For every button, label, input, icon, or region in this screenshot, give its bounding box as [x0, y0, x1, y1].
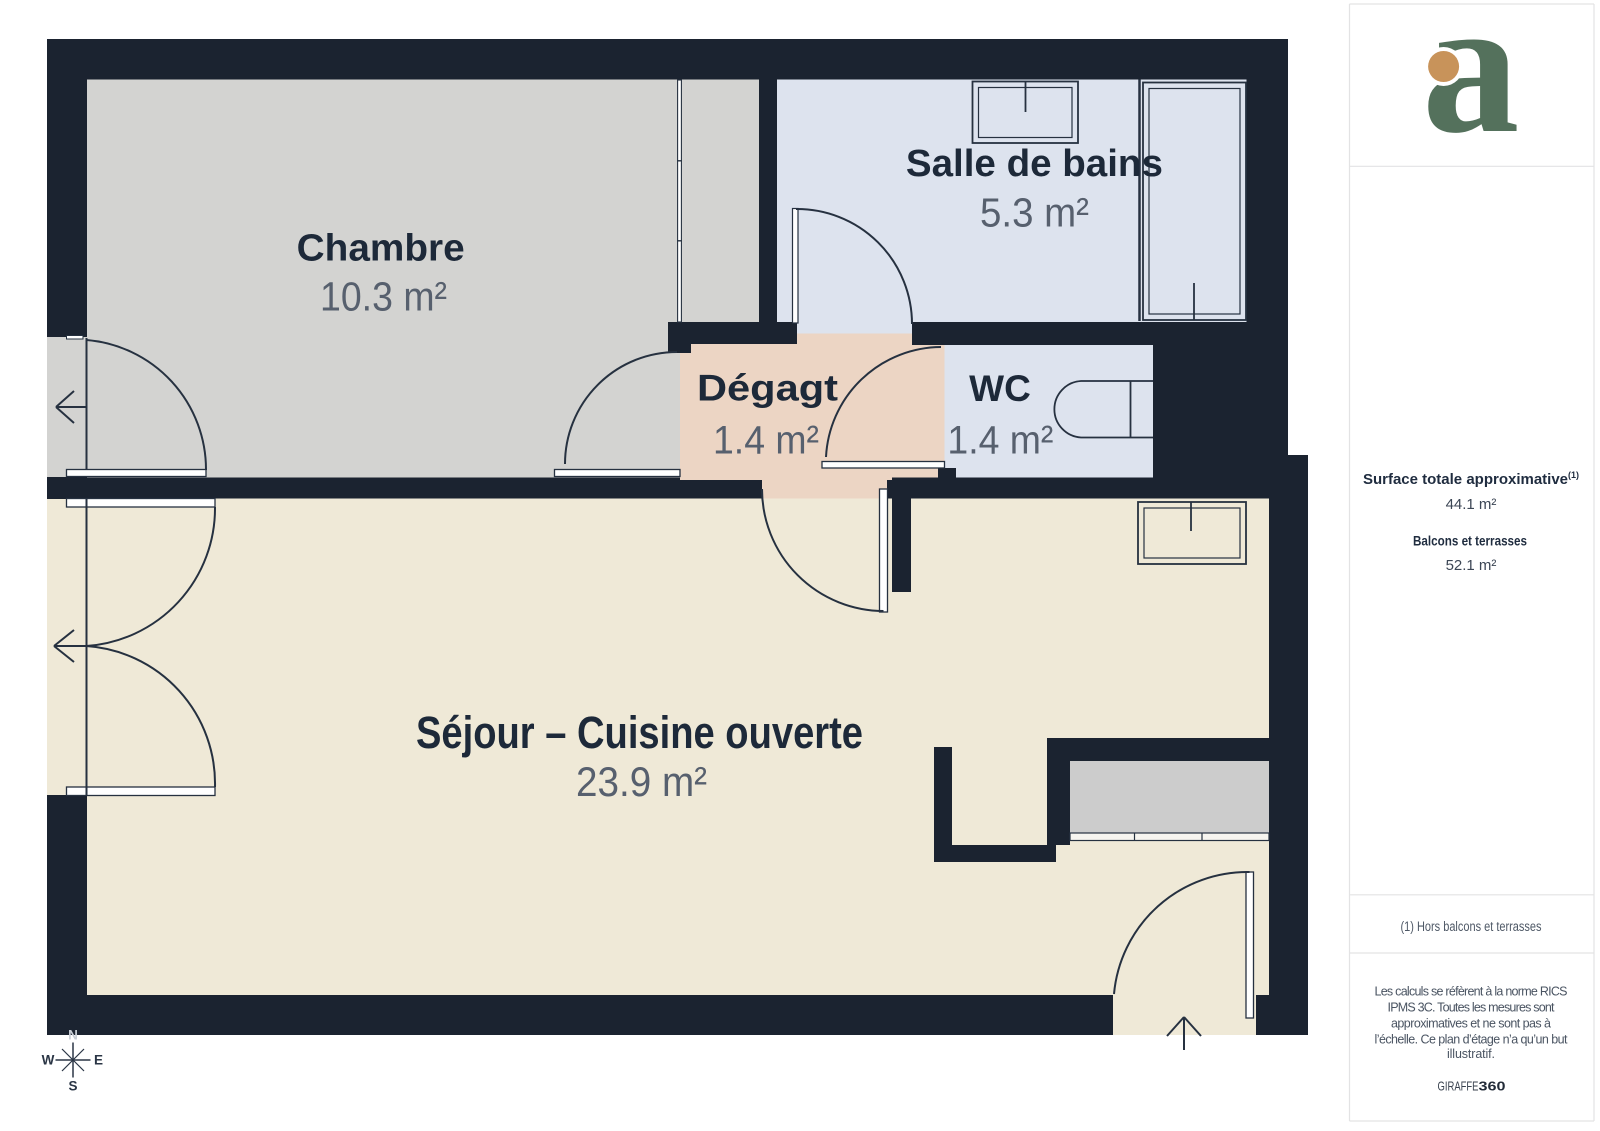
svg-text:illustratif.: illustratif.: [1447, 1047, 1495, 1061]
svg-text:approximatives et ne sont pas: approximatives et ne sont pas à: [1391, 1017, 1551, 1031]
svg-text:Dégagt: Dégagt: [697, 368, 838, 409]
svg-text:Séjour – Cuisine ouverte: Séjour – Cuisine ouverte: [416, 707, 863, 758]
svg-text:Les calculs se réfèrent à la n: Les calculs se réfèrent à la norme RICS: [1375, 985, 1568, 999]
svg-text:5.3 m²: 5.3 m²: [980, 190, 1089, 236]
svg-text:WC: WC: [969, 368, 1031, 409]
svg-text:l’échelle. Ce plan d’étage n’a: l’échelle. Ce plan d’étage n’a qu’un but: [1375, 1033, 1569, 1047]
svg-text:10.3 m²: 10.3 m²: [320, 274, 447, 320]
svg-text:W: W: [42, 1053, 55, 1068]
svg-text:IPMS 3C. Toutes les mesures so: IPMS 3C. Toutes les mesures sont: [1388, 1001, 1556, 1015]
svg-text:Surface totale approximative(1: Surface totale approximative(1): [1363, 470, 1579, 488]
svg-text:1.4 m²: 1.4 m²: [947, 419, 1053, 463]
svg-text:GIRAFFE: GIRAFFE: [1438, 1079, 1479, 1094]
svg-text:44.1 m²: 44.1 m²: [1446, 496, 1497, 513]
svg-text:23.9 m²: 23.9 m²: [576, 758, 707, 805]
svg-text:N: N: [68, 1027, 78, 1042]
svg-text:Balcons et terrasses: Balcons et terrasses: [1413, 533, 1527, 549]
svg-text:1.4 m²: 1.4 m²: [713, 419, 819, 463]
svg-text:(1) Hors balcons et terrasses: (1) Hors balcons et terrasses: [1401, 919, 1542, 934]
svg-text:Salle de bains: Salle de bains: [906, 143, 1163, 185]
svg-text:a: a: [1422, 0, 1520, 174]
svg-text:52.1 m²: 52.1 m²: [1446, 557, 1497, 574]
svg-text:360: 360: [1479, 1079, 1506, 1094]
svg-text:Chambre: Chambre: [297, 228, 465, 270]
svg-text:E: E: [94, 1053, 103, 1068]
svg-text:S: S: [68, 1079, 77, 1094]
